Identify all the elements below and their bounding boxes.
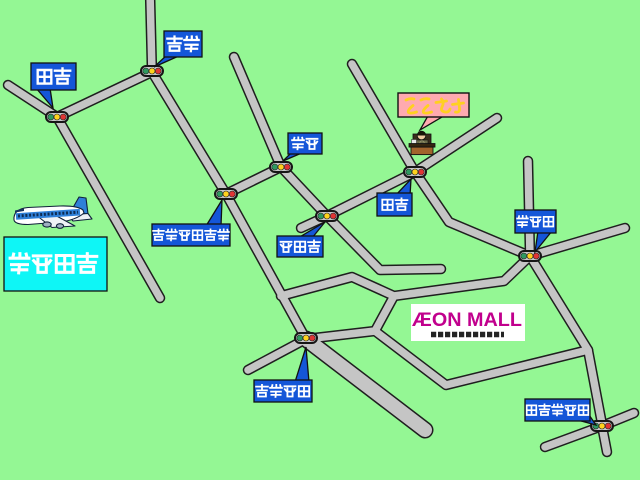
svg-text:ÆON MALL: ÆON MALL — [412, 309, 522, 331]
